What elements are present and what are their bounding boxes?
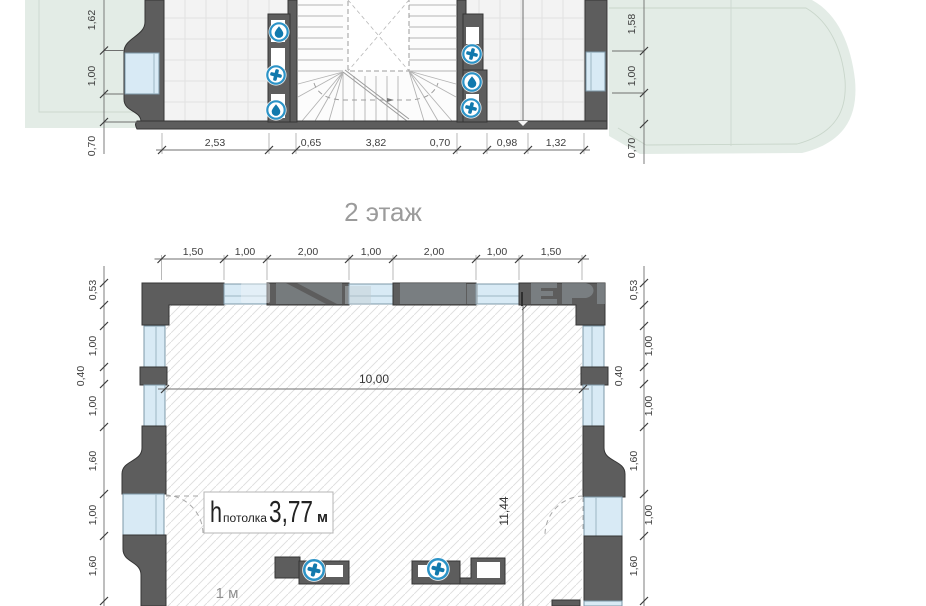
svg-text:0,70: 0,70 — [430, 137, 451, 149]
svg-text:0,65: 0,65 — [301, 137, 322, 149]
svg-text:0,53: 0,53 — [628, 280, 640, 301]
svg-text:1,00: 1,00 — [235, 246, 256, 258]
svg-text:1,00: 1,00 — [361, 246, 382, 258]
svg-text:11,44: 11,44 — [497, 496, 511, 525]
svg-text:1,60: 1,60 — [87, 556, 99, 577]
svg-text:1,00: 1,00 — [626, 66, 638, 87]
svg-text:0,40: 0,40 — [75, 366, 87, 387]
svg-text:3,82: 3,82 — [366, 137, 387, 149]
svg-text:1,00: 1,00 — [643, 396, 655, 417]
svg-text:1,00: 1,00 — [487, 246, 508, 258]
svg-text:2,00: 2,00 — [424, 246, 445, 258]
svg-text:3,77: 3,77 — [269, 494, 313, 529]
svg-text:0,40: 0,40 — [613, 366, 625, 387]
svg-text:1,00: 1,00 — [643, 505, 655, 526]
svg-text:0,53: 0,53 — [87, 280, 99, 301]
svg-text:потолка: потолка — [223, 513, 268, 525]
svg-text:м: м — [317, 509, 328, 526]
svg-text:2 этаж: 2 этаж — [344, 197, 422, 227]
svg-text:1,60: 1,60 — [628, 451, 640, 472]
svg-text:1,50: 1,50 — [183, 246, 204, 258]
svg-text:1,60: 1,60 — [87, 451, 99, 472]
svg-text:1,60: 1,60 — [628, 556, 640, 577]
svg-text:0,98: 0,98 — [497, 137, 518, 149]
svg-text:1,32: 1,32 — [546, 137, 567, 149]
svg-text:1 м: 1 м — [216, 585, 239, 602]
svg-text:1,50: 1,50 — [541, 246, 562, 258]
svg-text:1,00: 1,00 — [87, 505, 99, 526]
svg-text:1,58: 1,58 — [626, 14, 638, 35]
svg-text:0,70: 0,70 — [626, 138, 638, 159]
svg-text:1,00: 1,00 — [87, 336, 99, 357]
svg-text:2,00: 2,00 — [298, 246, 319, 258]
svg-text:1,00: 1,00 — [86, 66, 98, 87]
svg-text:h: h — [210, 496, 222, 529]
svg-text:1,00: 1,00 — [643, 336, 655, 357]
svg-text:10,00: 10,00 — [359, 372, 389, 386]
svg-text:2,53: 2,53 — [205, 137, 226, 149]
svg-text:1,00: 1,00 — [87, 396, 99, 417]
svg-text:0,70: 0,70 — [86, 136, 98, 157]
svg-text:1,62: 1,62 — [86, 10, 98, 31]
